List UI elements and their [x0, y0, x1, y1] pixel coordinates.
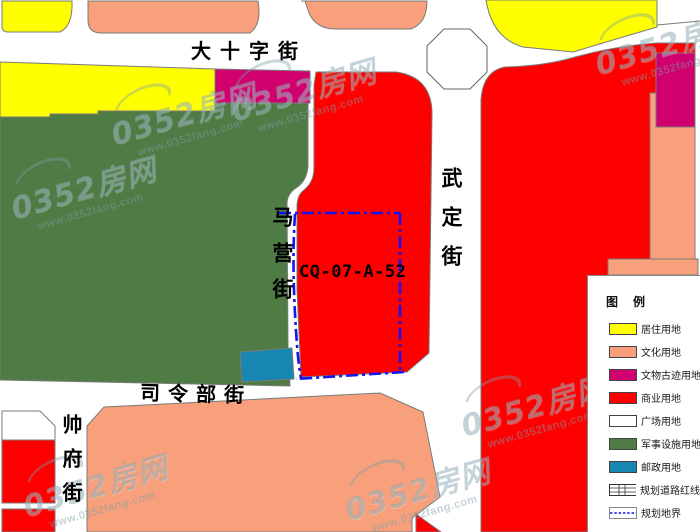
- street-label-mayingjie: 马营街: [271, 206, 292, 314]
- zone-residential-ne: [486, 0, 657, 52]
- postal-swatch: [609, 461, 637, 473]
- legend-item-heritage: 文物古迹用地: [588, 363, 700, 386]
- military-swatch: [609, 438, 637, 450]
- zone-postal: [240, 348, 294, 382]
- legend-item-residential: 居住用地: [588, 317, 700, 340]
- planning-boundary-icon: [609, 507, 637, 519]
- legend-label: 军事设施用地: [641, 436, 700, 451]
- legend-label: 规划地界: [641, 505, 681, 520]
- zone-plaza-sw: [2, 411, 55, 440]
- zone-cultural-east-strip: [608, 259, 698, 275]
- legend-title: 图 例: [606, 293, 700, 310]
- road-redline-icon: [609, 484, 636, 496]
- street-label-dashizijie: 大十字街: [191, 42, 307, 62]
- legend-item-plaza: 广场用地: [588, 409, 700, 432]
- commercial-swatch: [609, 392, 637, 404]
- legend-item-cultural: 文化用地: [588, 340, 700, 363]
- legend-label: 广场用地: [641, 413, 681, 428]
- zone-cultural-south: [87, 393, 440, 532]
- legend-panel: 图 例 居住用地 文化用地 文物古迹用地 商业用地 广场用地: [587, 275, 700, 532]
- legend-item-boundary: 规划地界: [588, 501, 700, 524]
- plaza-swatch: [609, 415, 637, 427]
- zone-residential-west: [0, 62, 215, 117]
- street-label-silingbujie: 司令部街: [140, 384, 252, 407]
- zone-commercial-parcel: [297, 72, 432, 377]
- legend-item-road-redline: 规划道路红线: [588, 478, 700, 501]
- legend-label: 文化用地: [641, 344, 681, 359]
- legend-item-commercial: 商业用地: [588, 386, 700, 409]
- zone-commercial-sw-b: [2, 509, 55, 532]
- legend-label: 规划道路红线: [640, 482, 700, 497]
- zone-military: [0, 103, 308, 386]
- roundabout-octagon: [427, 29, 487, 89]
- legend-label: 居住用地: [641, 321, 681, 336]
- zone-commercial-sw-a: [2, 440, 55, 503]
- street-edge-line: [657, 21, 700, 25]
- zone-heritage-east: [656, 53, 695, 127]
- zone-cultural-north-a: [88, 1, 259, 33]
- zone-cultural-north-b: [301, 1, 427, 29]
- zone-residential-nw: [2, 1, 72, 32]
- legend-label: 商业用地: [641, 390, 681, 405]
- legend-item-military: 军事设施用地: [588, 432, 700, 455]
- cultural-swatch: [609, 346, 637, 358]
- legend-item-postal: 邮政用地: [588, 455, 700, 478]
- planning-map: 0352房网 www.0352fang.com 0352房网 www.0352f…: [0, 0, 700, 532]
- street-label-shuaifujie: 帅府街: [60, 414, 80, 516]
- zone-heritage-west: [215, 69, 310, 103]
- heritage-swatch: [609, 369, 637, 381]
- parcel-code-label: CQ-07-A-52: [299, 262, 406, 282]
- street-label-wudingjie: 武定街: [440, 167, 461, 284]
- legend-rows: 居住用地 文化用地 文物古迹用地 商业用地 广场用地 军事设施用地: [588, 317, 700, 524]
- zone-commercial-south-wedge: [416, 514, 441, 532]
- legend-label: 文物古迹用地: [641, 367, 700, 382]
- legend-label: 邮政用地: [641, 459, 681, 474]
- residential-swatch: [609, 323, 637, 335]
